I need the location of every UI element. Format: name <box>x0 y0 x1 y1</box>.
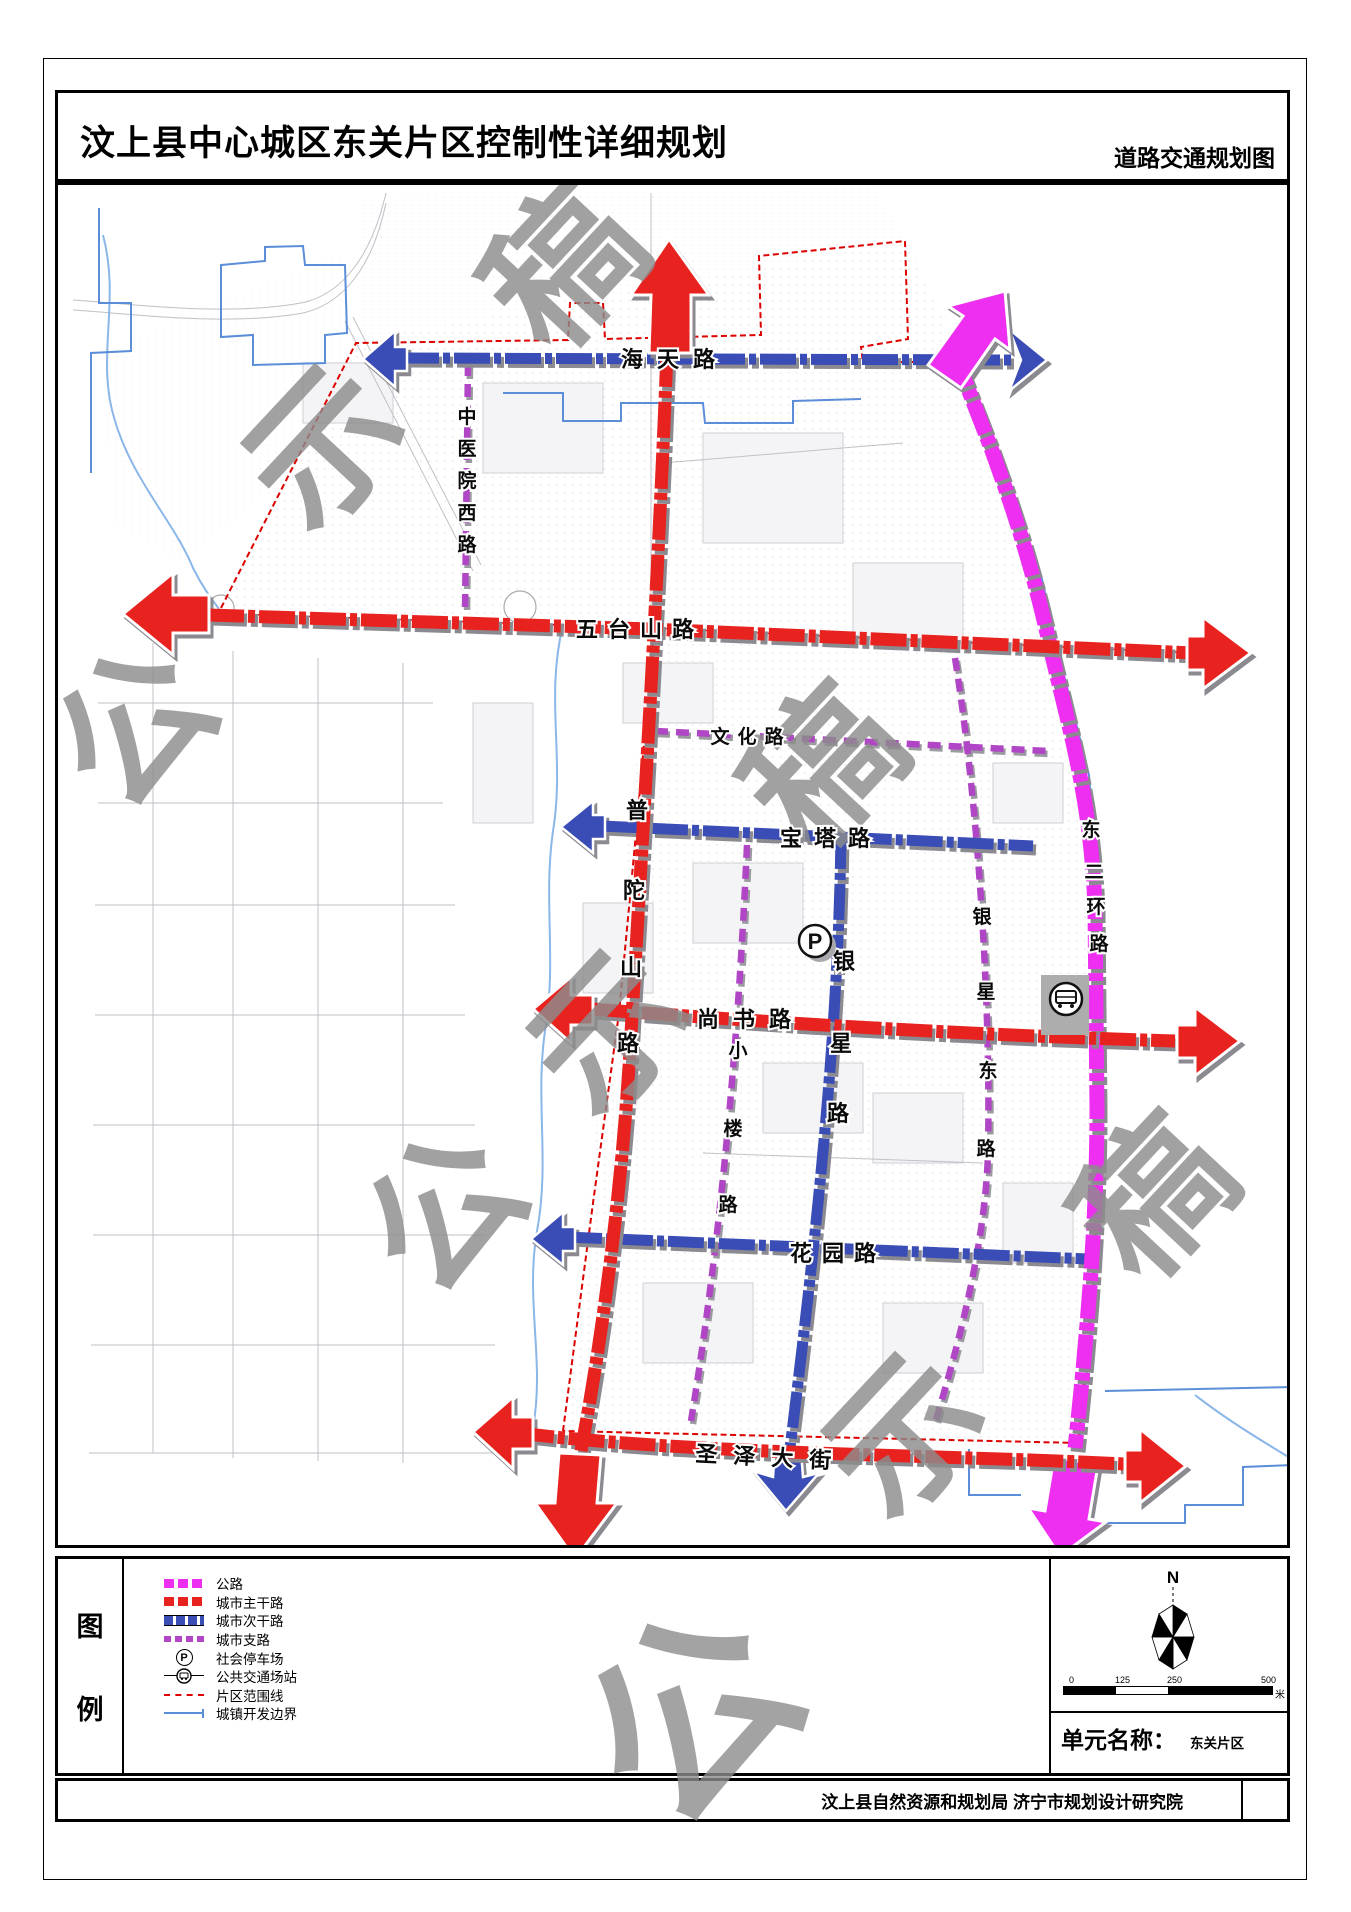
svg-text:二: 二 <box>1084 862 1103 883</box>
page-subtitle: 道路交通规划图 <box>1114 139 1275 173</box>
map-drawing: 稿 示 公 稿 示 公 稿 示 海天路 五台山路 文化路 宝塔路 尚书路 花园路… <box>58 185 1287 1545</box>
svg-text:小: 小 <box>728 1040 747 1062</box>
highway-swatch <box>164 1579 204 1588</box>
secondary-swatch <box>164 1615 204 1626</box>
svg-text:星: 星 <box>976 981 995 1003</box>
svg-text:院: 院 <box>457 469 476 492</box>
footer-empty-cell <box>1241 1781 1287 1819</box>
parking-legend-icon: P <box>164 1650 204 1666</box>
dev-boundary-swatch <box>164 1712 204 1714</box>
svg-text:路: 路 <box>718 1193 738 1216</box>
svg-text:P: P <box>808 929 823 954</box>
legend-panel: 图 例 公路 城市主干路 城市次干路 城市支路 P <box>55 1556 1290 1776</box>
legend-item-branch: 城市支路 <box>164 1630 297 1649</box>
svg-text:路: 路 <box>457 533 477 556</box>
legend-item-arterial: 城市主干路 <box>164 1593 297 1612</box>
legend-item-transit: 公共交通场站 <box>164 1667 297 1686</box>
svg-text:陀: 陀 <box>623 878 645 903</box>
svg-text:环: 环 <box>1086 897 1105 918</box>
legend-item-dev-boundary: 城镇开发边界 <box>164 1704 297 1723</box>
svg-text:路: 路 <box>976 1137 996 1160</box>
svg-text:五台山路: 五台山路 <box>576 617 704 642</box>
branch-swatch <box>164 1636 204 1642</box>
arrow-wutaishan-east <box>1187 617 1251 689</box>
arterial-swatch <box>164 1597 204 1606</box>
title-block: 汶上县中心城区东关片区控制性详细规划 道路交通规划图 <box>55 90 1290 182</box>
svg-text:银: 银 <box>833 949 856 974</box>
arrow-shengze-east <box>1125 1429 1186 1503</box>
bus-legend-icon <box>164 1668 204 1684</box>
svg-text:花园路: 花园路 <box>790 1241 886 1266</box>
svg-text:海天路: 海天路 <box>621 347 729 372</box>
legend-items: 公路 城市主干路 城市次干路 城市支路 P 社会停车场 <box>164 1574 297 1723</box>
legend-item-district-boundary: 片区范围线 <box>164 1686 297 1705</box>
map-canvas: 稿 示 公 稿 示 公 稿 示 海天路 五台山路 文化路 宝塔路 尚书路 花园路… <box>55 182 1290 1548</box>
svg-text:医: 医 <box>457 439 476 460</box>
arrow-dongerhuan-south <box>1028 1457 1106 1545</box>
svg-text:路: 路 <box>827 1101 850 1126</box>
scale-bar: 0 125 250 500 米 <box>1063 1675 1283 1709</box>
arrow-haitian-east <box>1009 329 1047 391</box>
svg-text:东: 东 <box>1081 818 1100 841</box>
svg-text:西: 西 <box>457 503 476 524</box>
svg-text:普: 普 <box>626 798 648 823</box>
svg-text:星: 星 <box>830 1031 852 1056</box>
arrow-baota-west <box>561 801 605 853</box>
svg-text:山: 山 <box>620 955 642 980</box>
bus-icon <box>1041 975 1089 1035</box>
svg-text:文化路: 文化路 <box>710 725 791 748</box>
page-title: 汶上县中心城区东关片区控制性详细规划 <box>80 115 728 166</box>
arrow-shengze-west <box>473 1397 533 1469</box>
svg-text:中: 中 <box>457 405 476 428</box>
legend-item-secondary: 城市次干路 <box>164 1611 297 1630</box>
svg-text:路: 路 <box>1089 932 1109 955</box>
svg-text:东: 东 <box>978 1059 997 1082</box>
legend-item-highway: 公路 <box>164 1574 297 1593</box>
legend-item-parking: P 社会停车场 <box>164 1648 297 1667</box>
legend-title-char-2: 例 <box>77 1688 104 1727</box>
svg-text:楼: 楼 <box>723 1117 742 1140</box>
arrow-putuoshan-south <box>535 1453 617 1545</box>
arrow-shangshu-east <box>1177 1007 1240 1076</box>
svg-text:公: 公 <box>332 1100 557 1324</box>
district-boundary-swatch <box>164 1694 204 1696</box>
svg-text:公: 公 <box>58 615 248 839</box>
svg-text:N: N <box>1167 1568 1179 1587</box>
unit-name-row: 单元名称： 东关片区 <box>1061 1721 1244 1755</box>
unit-name-value: 东关片区 <box>1190 1732 1244 1752</box>
legend-title: 图 例 <box>58 1559 124 1773</box>
planning-sheet: 汶上县中心城区东关片区控制性详细规划 道路交通规划图 <box>0 0 1351 1912</box>
legend-title-char-1: 图 <box>77 1605 104 1644</box>
svg-text:宝塔路: 宝塔路 <box>780 826 882 851</box>
svg-text:银: 银 <box>972 905 992 928</box>
svg-text:尚书路: 尚书路 <box>697 1007 805 1032</box>
svg-text:路: 路 <box>617 1031 640 1056</box>
footer-bar: 汶上县自然资源和规划局 济宁市规划设计研究院 <box>55 1778 1290 1822</box>
unit-name-label: 单元名称： <box>1061 1721 1176 1755</box>
footer-credit: 汶上县自然资源和规划局 济宁市规划设计研究院 <box>58 1781 1241 1819</box>
